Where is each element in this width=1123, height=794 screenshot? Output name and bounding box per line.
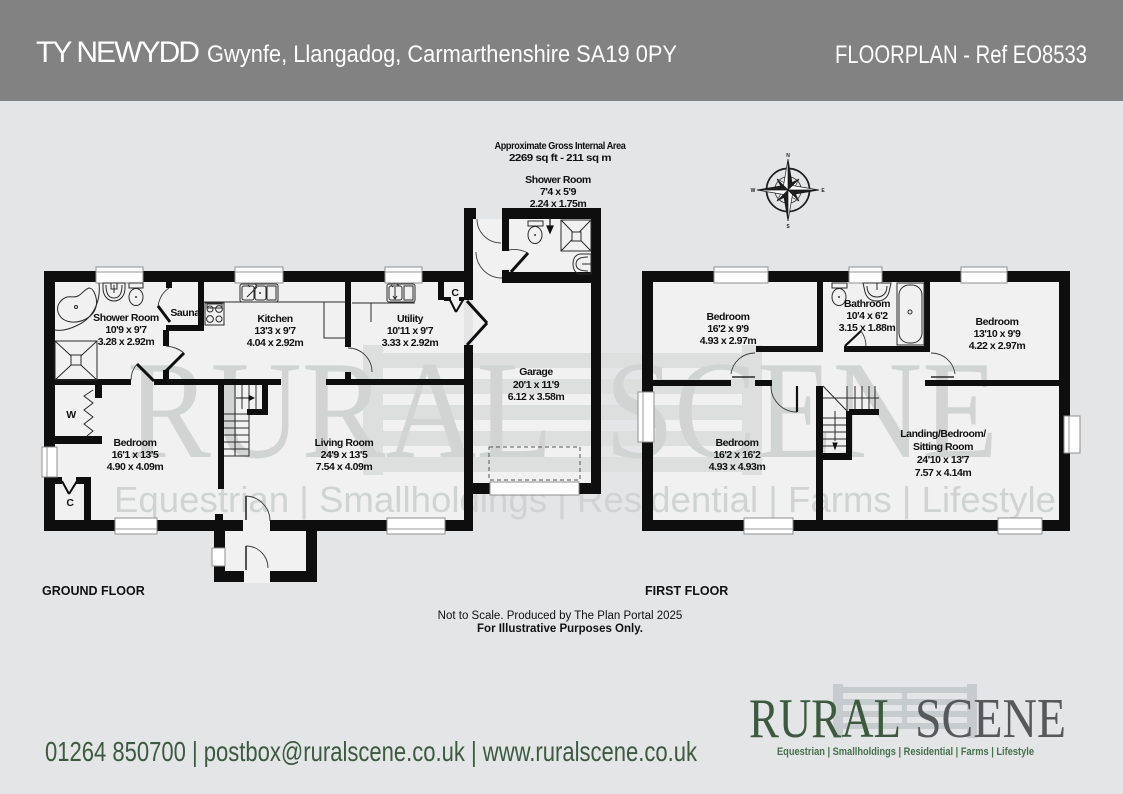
svg-text:Bathroom: Bathroom xyxy=(844,298,890,310)
svg-text:Shower Room: Shower Room xyxy=(525,174,591,186)
svg-text:FIRST FLOOR: FIRST FLOOR xyxy=(645,584,728,598)
svg-text:3.33 x 2.92m: 3.33 x 2.92m xyxy=(382,337,439,349)
svg-text:10'11 x 9'7: 10'11 x 9'7 xyxy=(387,325,434,337)
svg-text:Living Room: Living Room xyxy=(315,437,374,449)
svg-text:Bedroom: Bedroom xyxy=(707,311,750,323)
svg-text:20'1 x 11'9: 20'1 x 11'9 xyxy=(513,379,560,391)
svg-text:16'2 x 16'2: 16'2 x 16'2 xyxy=(714,449,761,461)
svg-text:N: N xyxy=(786,153,790,159)
svg-text:Bedroom: Bedroom xyxy=(976,316,1019,328)
svg-text:3.28 x 2.92m: 3.28 x 2.92m xyxy=(98,336,155,348)
svg-text:7.57 x 4.14m: 7.57 x 4.14m xyxy=(915,467,972,479)
svg-text:RURAL: RURAL xyxy=(749,688,901,750)
svg-text:4.93 x 2.97m: 4.93 x 2.97m xyxy=(700,335,757,347)
svg-text:Bedroom: Bedroom xyxy=(716,437,759,449)
svg-text:For Illustrative Purposes Only: For Illustrative Purposes Only. xyxy=(477,623,643,635)
svg-text:SCENE: SCENE xyxy=(915,688,1066,750)
svg-text:6.12 x 3.58m: 6.12 x 3.58m xyxy=(508,391,565,403)
svg-text:24'9 x 13'5: 24'9 x 13'5 xyxy=(321,449,368,461)
svg-text:24'10 x 13'7: 24'10 x 13'7 xyxy=(917,454,970,466)
svg-text:GROUND FLOOR: GROUND FLOOR xyxy=(42,584,145,598)
svg-text:Kitchen: Kitchen xyxy=(257,313,292,325)
svg-text:Utility: Utility xyxy=(397,313,424,325)
svg-text:4.04 x 2.92m: 4.04 x 2.92m xyxy=(247,337,304,349)
svg-text:C: C xyxy=(451,287,459,299)
svg-text:13'3 x 9'7: 13'3 x 9'7 xyxy=(254,325,296,337)
svg-text:4.22 x 2.97m: 4.22 x 2.97m xyxy=(969,340,1026,352)
svg-text:TY NEWYDD: TY NEWYDD xyxy=(36,36,200,69)
svg-text:16'1 x 13'5: 16'1 x 13'5 xyxy=(112,449,159,461)
svg-text:W: W xyxy=(66,409,76,421)
svg-text:W: W xyxy=(751,188,756,194)
svg-text:Landing/Bedroom/: Landing/Bedroom/ xyxy=(900,428,986,440)
svg-text:10'4 x 6'2: 10'4 x 6'2 xyxy=(846,310,888,322)
svg-text:2269 sq ft - 211 sq m: 2269 sq ft - 211 sq m xyxy=(509,152,611,164)
svg-text:C: C xyxy=(66,497,74,509)
svg-text:16'2 x 9'9: 16'2 x 9'9 xyxy=(707,323,749,335)
svg-text:01264 850700 | postbox@ruralsc: 01264 850700 | postbox@ruralscene.co.uk … xyxy=(45,736,698,767)
svg-text:7'4 x 5'9: 7'4 x 5'9 xyxy=(540,186,577,198)
svg-text:Approximate Gross Internal Are: Approximate Gross Internal Area xyxy=(495,140,627,152)
svg-text:Garage: Garage xyxy=(519,366,553,378)
svg-text:Not to Scale. Produced by The: Not to Scale. Produced by The Plan Porta… xyxy=(438,610,683,622)
svg-text:Shower Room: Shower Room xyxy=(93,312,159,324)
svg-text:FLOORPLAN - Ref EO8533: FLOORPLAN - Ref EO8533 xyxy=(835,41,1087,69)
svg-text:10'9 x 9'7: 10'9 x 9'7 xyxy=(105,324,147,336)
svg-text:7.54 x 4.09m: 7.54 x 4.09m xyxy=(316,461,373,473)
svg-text:Sitting Room: Sitting Room xyxy=(913,441,973,453)
svg-text:3.15 x 1.88m: 3.15 x 1.88m xyxy=(839,322,896,334)
svg-text:4.90 x 4.09m: 4.90 x 4.09m xyxy=(107,461,164,473)
svg-text:Bedroom: Bedroom xyxy=(114,437,157,449)
svg-text:4.93 x 4.93m: 4.93 x 4.93m xyxy=(709,461,766,473)
svg-text:Sauna: Sauna xyxy=(170,307,200,319)
svg-text:Equestrian | Smallholdings | R: Equestrian | Smallholdings | Residential… xyxy=(777,746,1034,758)
svg-text:13'10 x 9'9: 13'10 x 9'9 xyxy=(974,328,1021,340)
svg-text:2.24 x 1.75m: 2.24 x 1.75m xyxy=(530,198,587,210)
svg-text:Gwynfe, Llangadog, Carmarthens: Gwynfe, Llangadog, Carmarthenshire SA19 … xyxy=(207,41,677,68)
